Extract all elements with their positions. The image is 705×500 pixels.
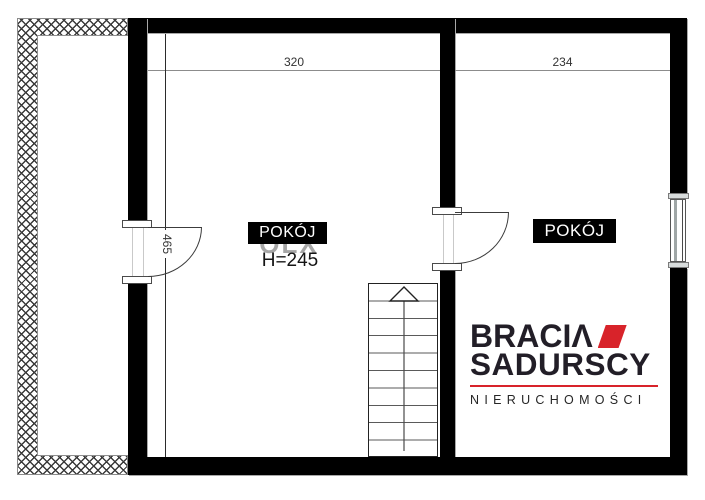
logo-red-flag-icon [598, 325, 627, 348]
wall-right-upper [670, 18, 687, 193]
window-mullion [674, 200, 677, 261]
balcony-door-jamb-bottom [122, 276, 152, 284]
window-cap-bottom [668, 262, 689, 268]
dimension-label-right-room: 234 [455, 55, 670, 69]
room-door-swing-icon [455, 212, 509, 264]
balcony-hatched-wall [17, 18, 128, 475]
staircase [368, 283, 438, 457]
balcony-door-swing-icon [148, 227, 202, 277]
wall-top [128, 18, 687, 33]
room-right-label: POKÓJ [533, 219, 616, 243]
balcony-door-track [132, 228, 144, 276]
dimension-label-left-room: 320 [148, 55, 440, 69]
room-door-jamb-bottom [432, 263, 462, 271]
wall-right-lower [670, 268, 687, 475]
wall-bottom [128, 457, 687, 475]
logo-tagline: NIERUCHOMOŚCI [470, 393, 660, 407]
room-door-track [443, 215, 454, 263]
logo-word-sadurscy: SADURSCY [470, 351, 660, 378]
window-frame [670, 199, 686, 262]
window-glass-line [682, 200, 683, 261]
wall-left-upper [128, 18, 147, 223]
room-left-label: POKÓJ [248, 222, 327, 244]
room-left-height-note: H=245 [240, 250, 340, 272]
dimension-line-right-room [455, 70, 670, 71]
wall-middle-lower [440, 268, 455, 457]
dimension-line-left-room [148, 70, 440, 71]
wall-middle-upper [440, 18, 455, 213]
wall-left-lower [128, 283, 147, 475]
stairs-direction-arrow-icon [369, 284, 439, 458]
floorplan-canvas: 320 234 465 OLX POKÓJ H=245 POKÓJ BRACIΛ… [0, 0, 705, 500]
balcony-floor [37, 35, 129, 456]
logo-red-rule [470, 385, 658, 387]
agency-logo: BRACIΛ SADURSCY NIERUCHOMOŚCI [470, 323, 660, 407]
